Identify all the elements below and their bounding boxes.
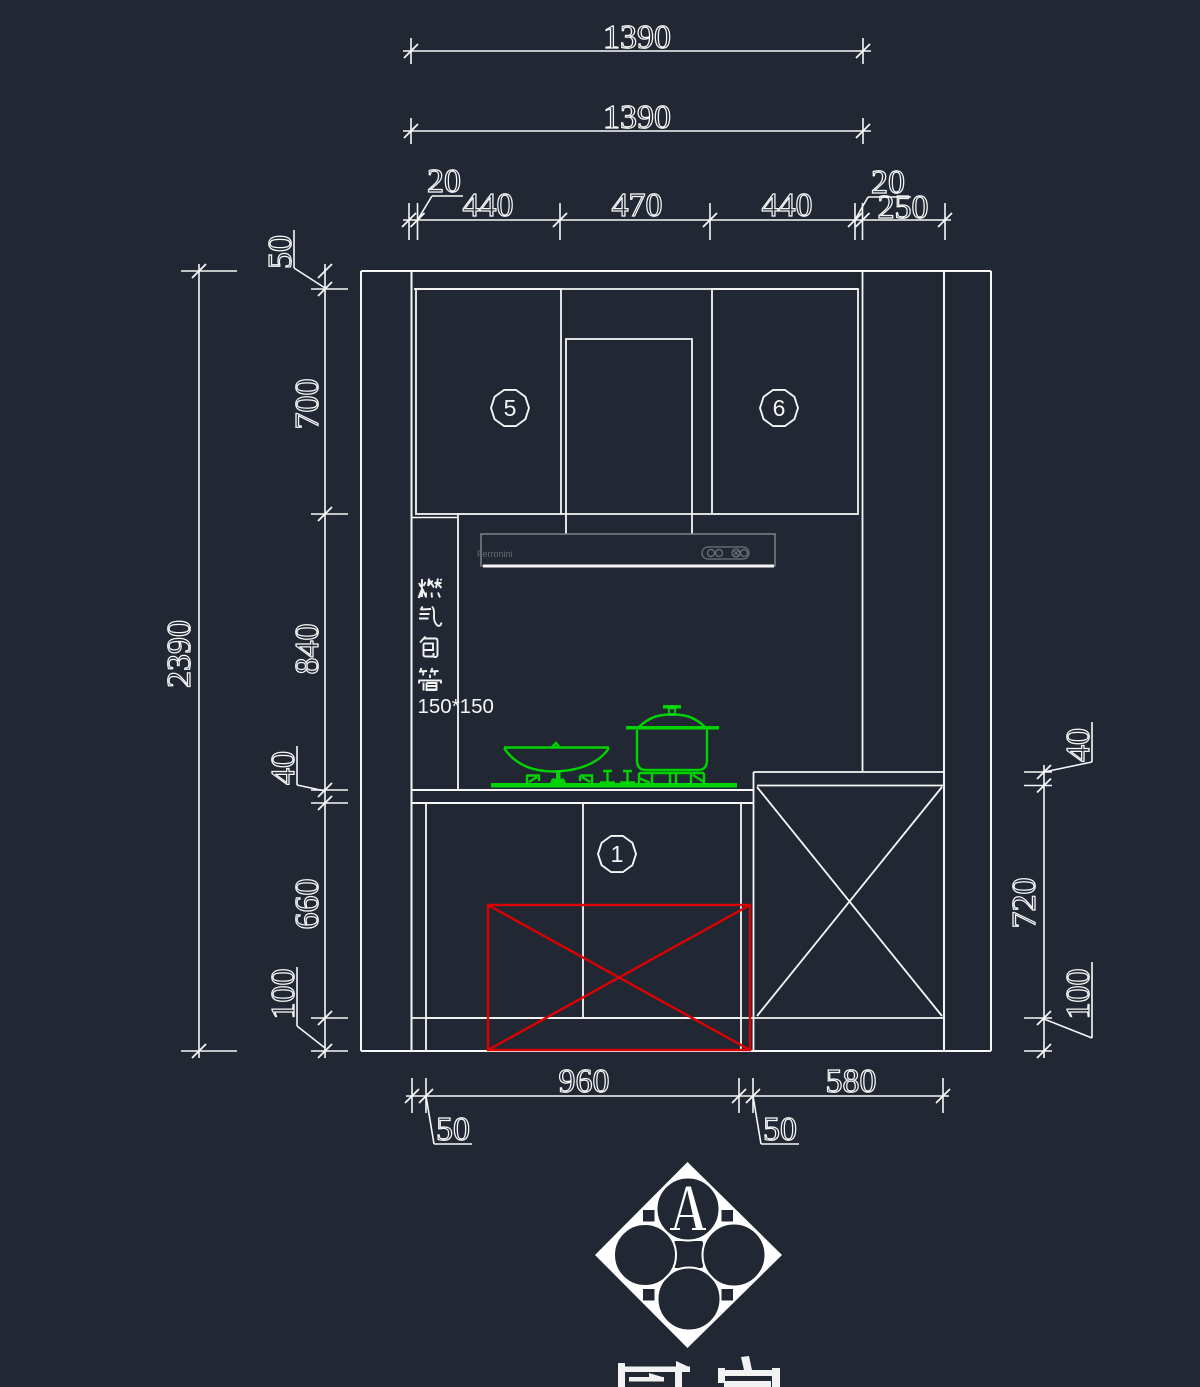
svg-text:100: 100 — [1060, 969, 1097, 1020]
svg-text:580: 580 — [826, 1063, 877, 1100]
svg-text:1: 1 — [611, 841, 624, 867]
svg-text:20: 20 — [871, 164, 905, 201]
svg-text:100: 100 — [265, 969, 302, 1020]
svg-text:960: 960 — [559, 1063, 610, 1100]
svg-text:700: 700 — [289, 379, 326, 430]
svg-text:150*150: 150*150 — [418, 695, 494, 718]
svg-text:1390: 1390 — [603, 19, 671, 56]
svg-text:660: 660 — [289, 879, 326, 930]
svg-text:20: 20 — [427, 163, 461, 200]
svg-text:Ferronini: Ferronini — [477, 549, 513, 559]
svg-text:720: 720 — [1006, 878, 1043, 929]
svg-text:440: 440 — [762, 187, 813, 224]
svg-text:440: 440 — [463, 187, 514, 224]
svg-text:50: 50 — [436, 1111, 470, 1148]
svg-text:1390: 1390 — [603, 99, 671, 136]
svg-text:50: 50 — [763, 1111, 797, 1148]
svg-text:6: 6 — [773, 395, 786, 421]
svg-text:5: 5 — [504, 395, 517, 421]
svg-text:40: 40 — [1060, 728, 1097, 762]
svg-text:2390: 2390 — [161, 620, 198, 688]
svg-text:470: 470 — [612, 187, 663, 224]
svg-text:40: 40 — [265, 751, 302, 785]
svg-text:50: 50 — [262, 235, 299, 269]
svg-text:840: 840 — [289, 624, 326, 675]
